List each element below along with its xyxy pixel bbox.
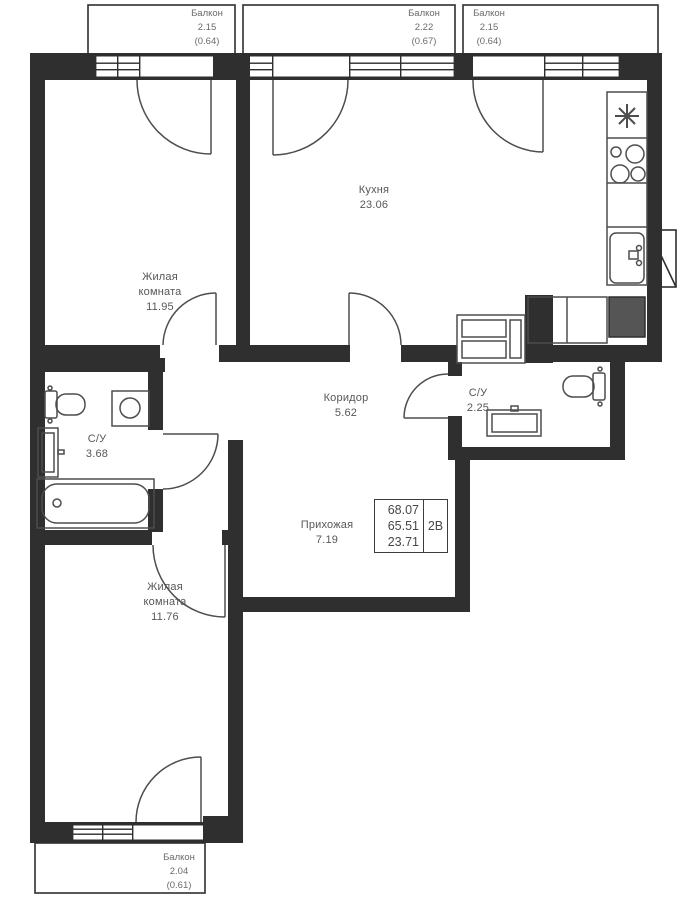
balcony-coef: (0.64) bbox=[191, 35, 223, 49]
door-arc bbox=[163, 434, 218, 489]
balcony-coef: (0.67) bbox=[408, 35, 440, 49]
wall-right-outer bbox=[647, 53, 662, 353]
wall bbox=[401, 345, 457, 362]
wall bbox=[228, 440, 243, 843]
bathtub-icon bbox=[37, 479, 154, 528]
room-label-living1: Жилая комната 11.95 bbox=[139, 270, 182, 315]
room-area: 3.68 bbox=[86, 447, 108, 462]
room-name: комната bbox=[139, 285, 182, 300]
door-arc bbox=[473, 80, 543, 152]
room-name: С/У bbox=[467, 386, 489, 401]
balcony-label-2: Балкон 2.22 (0.67) bbox=[408, 7, 440, 49]
toilet-icon bbox=[45, 386, 85, 423]
room-area: 23.06 bbox=[359, 198, 389, 213]
balcony-coef: (0.64) bbox=[473, 35, 505, 49]
balcony-area: 2.15 bbox=[191, 21, 223, 35]
wall bbox=[30, 822, 72, 843]
rooms-area: 23.71 bbox=[375, 534, 419, 550]
wall bbox=[553, 345, 662, 362]
floorplan: Балкон 2.15 (0.64) Балкон 2.22 (0.67) Ба… bbox=[0, 0, 677, 900]
wall bbox=[219, 345, 250, 362]
stove-icon bbox=[611, 145, 645, 183]
appliance-unit bbox=[609, 297, 645, 337]
closet bbox=[457, 315, 525, 363]
wall bbox=[228, 597, 470, 612]
washbasin-icon bbox=[487, 406, 541, 436]
balcony-area: 2.15 bbox=[473, 21, 505, 35]
wall bbox=[455, 447, 625, 460]
balcony-coef: (0.61) bbox=[163, 879, 195, 893]
small-bathroom-fixtures bbox=[487, 367, 605, 436]
living-area: 65.51 bbox=[375, 518, 419, 534]
room-name: С/У bbox=[86, 432, 108, 447]
area-summary-values: 68.07 65.51 23.71 bbox=[375, 500, 424, 552]
wall bbox=[250, 345, 350, 362]
wall bbox=[455, 53, 473, 80]
door-arc bbox=[136, 757, 201, 822]
room-name: Кухня bbox=[359, 183, 389, 198]
radiator-icon bbox=[38, 428, 64, 477]
balcony-label-3: Балкон 2.15 (0.64) bbox=[473, 7, 505, 49]
wall bbox=[30, 358, 165, 372]
balcony-name: Балкон bbox=[163, 851, 195, 865]
star-icon bbox=[615, 104, 639, 128]
balcony-area: 2.22 bbox=[408, 21, 440, 35]
wall bbox=[610, 362, 625, 460]
door-arc bbox=[273, 80, 348, 155]
room-area: 7.19 bbox=[301, 533, 354, 548]
room-area: 5.62 bbox=[324, 406, 369, 421]
layout-type: 2В bbox=[424, 500, 447, 552]
room-label-hallway: Прихожая 7.19 bbox=[301, 518, 354, 548]
room-name: Жилая bbox=[144, 580, 187, 595]
door-arc bbox=[404, 374, 448, 418]
room-name: Жилая bbox=[139, 270, 182, 285]
room-name: комната bbox=[144, 595, 187, 610]
room-label-kitchen: Кухня 23.06 bbox=[359, 183, 389, 213]
balcony-name: Балкон bbox=[408, 7, 440, 21]
washing-machine-icon bbox=[112, 391, 149, 426]
room-label-bath-small: С/У 2.25 bbox=[467, 386, 489, 416]
wall bbox=[148, 489, 163, 532]
room-label-corridor: Коридор 5.62 bbox=[324, 391, 369, 421]
balcony-name: Балкон bbox=[191, 7, 223, 21]
room-label-bath-big: С/У 3.68 bbox=[86, 432, 108, 462]
wall bbox=[448, 362, 462, 376]
door-arc bbox=[349, 293, 401, 345]
room-area: 11.95 bbox=[139, 300, 182, 315]
room-name: Коридор bbox=[324, 391, 369, 406]
walls bbox=[30, 53, 662, 843]
wall bbox=[455, 460, 470, 612]
wall bbox=[525, 295, 553, 363]
total-area: 68.07 bbox=[375, 502, 419, 518]
balcony-label-1: Балкон 2.15 (0.64) bbox=[191, 7, 223, 49]
balcony-label-4: Балкон 2.04 (0.61) bbox=[163, 851, 195, 893]
balcony-area: 2.04 bbox=[163, 865, 195, 879]
wall bbox=[236, 53, 250, 362]
balcony-name: Балкон bbox=[473, 7, 505, 21]
area-summary-box: 68.07 65.51 23.71 2В bbox=[374, 499, 448, 553]
wall bbox=[203, 816, 243, 843]
kitchen-sink-icon bbox=[610, 233, 644, 283]
wall bbox=[148, 372, 163, 430]
door-arc bbox=[137, 80, 211, 154]
room-area: 2.25 bbox=[467, 401, 489, 416]
toilet-icon bbox=[563, 367, 605, 406]
room-label-living2: Жилая комната 11.76 bbox=[144, 580, 187, 625]
room-area: 11.76 bbox=[144, 610, 187, 625]
room-name: Прихожая bbox=[301, 518, 354, 533]
wall bbox=[30, 530, 152, 545]
